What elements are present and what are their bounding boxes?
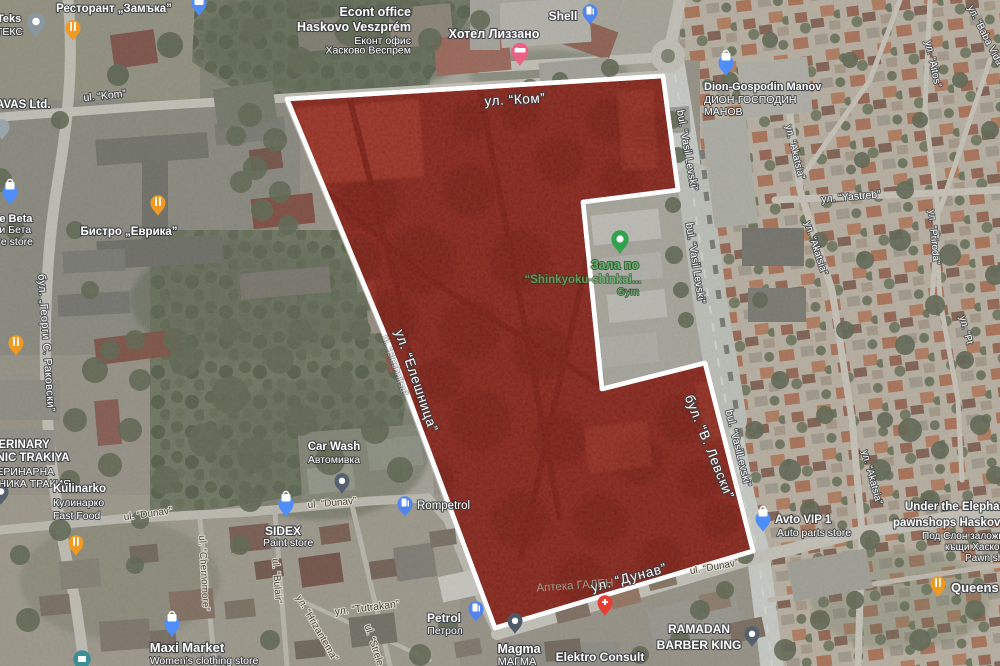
svg-text:Зала по: Зала по — [591, 258, 640, 272]
svg-text:Rompetrol: Rompetrol — [417, 500, 470, 512]
svg-text:Shell: Shell — [549, 9, 578, 23]
svg-text:CLINIC TRAKIYA: CLINIC TRAKIYA — [0, 452, 70, 464]
svg-text:Kulinarko: Kulinarko — [53, 483, 106, 495]
svg-text:VETERINARY: VETERINARY — [0, 439, 50, 451]
svg-text:AVAS Ltd.: AVAS Ltd. — [0, 99, 51, 111]
svg-text:Haskovo Veszprém: Haskovo Veszprém — [297, 20, 411, 34]
svg-text:Teks: Teks — [0, 13, 21, 25]
svg-text:Dion-Gospodin Manov: Dion-Gospodin Manov — [704, 81, 822, 93]
svg-text:“Shinkyoku-shinkai...: “Shinkyoku-shinkai... — [525, 274, 642, 286]
svg-text:Queens: Queens — [951, 580, 999, 595]
svg-text:ул. “Ком”: ул. “Ком” — [484, 90, 546, 108]
svg-text:Петрол: Петрол — [427, 625, 462, 637]
svg-text:Car Wash: Car Wash — [308, 441, 361, 453]
svg-text:Хотел Лиззано: Хотел Лиззано — [449, 27, 540, 41]
svg-text:SIDEX: SIDEX — [265, 524, 301, 538]
svg-text:Gym: Gym — [617, 286, 639, 298]
svg-text:Хасково Веспрем: Хасково Веспрем — [325, 45, 411, 57]
svg-text:къщи Хасково: къщи Хасково — [945, 542, 1000, 553]
svg-text:Petrol: Petrol — [427, 611, 461, 625]
svg-text:Автомивка: Автомивка — [308, 454, 360, 466]
svg-text:Women's clothing store: Women's clothing store — [150, 655, 259, 666]
svg-text:ВЕТЕРИНАРНА: ВЕТЕРИНАРНА — [0, 466, 54, 478]
svg-text:Paint store: Paint store — [263, 537, 313, 549]
svg-text:ware store: ware store — [0, 236, 33, 248]
svg-text:Fast Food: Fast Food — [53, 510, 100, 522]
svg-text:Бистро „Еврика”: Бистро „Еврика” — [80, 226, 177, 238]
svg-text:Кулинарко: Кулинарко — [53, 497, 104, 509]
svg-text:Pawn shop: Pawn shop — [965, 553, 1000, 564]
svg-text:pawnshops Haskovo: pawnshops Haskovo — [893, 517, 1000, 529]
svg-text:МАГМА: МАГМА — [498, 656, 537, 666]
svg-text:Под Слон заложни: Под Слон заложни — [922, 531, 1000, 542]
svg-text:Under the Elephant: Under the Elephant — [905, 501, 1000, 513]
svg-text:МАНОВ: МАНОВ — [704, 106, 743, 118]
svg-text:Avto VIP 1: Avto VIP 1 — [775, 514, 832, 526]
svg-text:Ресторант „Замъка”: Ресторант „Замъка” — [56, 3, 172, 15]
svg-text:Econt office: Econt office — [339, 5, 411, 19]
svg-text:Elektro Consult: Elektro Consult — [556, 650, 645, 664]
svg-text:ДИОН-ГОСПОДИН: ДИОН-ГОСПОДИН — [704, 94, 796, 106]
svg-text:Auto parts store: Auto parts store — [777, 527, 851, 539]
svg-text:BARBER KING: BARBER KING — [657, 638, 742, 652]
svg-text:ови Бета: ови Бета — [0, 224, 31, 236]
svg-text:ТЕКС: ТЕКС — [0, 26, 23, 38]
svg-text:Magma: Magma — [497, 642, 541, 656]
svg-text:RAMADAN: RAMADAN — [668, 622, 730, 636]
svg-text:Maxi Market: Maxi Market — [150, 640, 225, 655]
